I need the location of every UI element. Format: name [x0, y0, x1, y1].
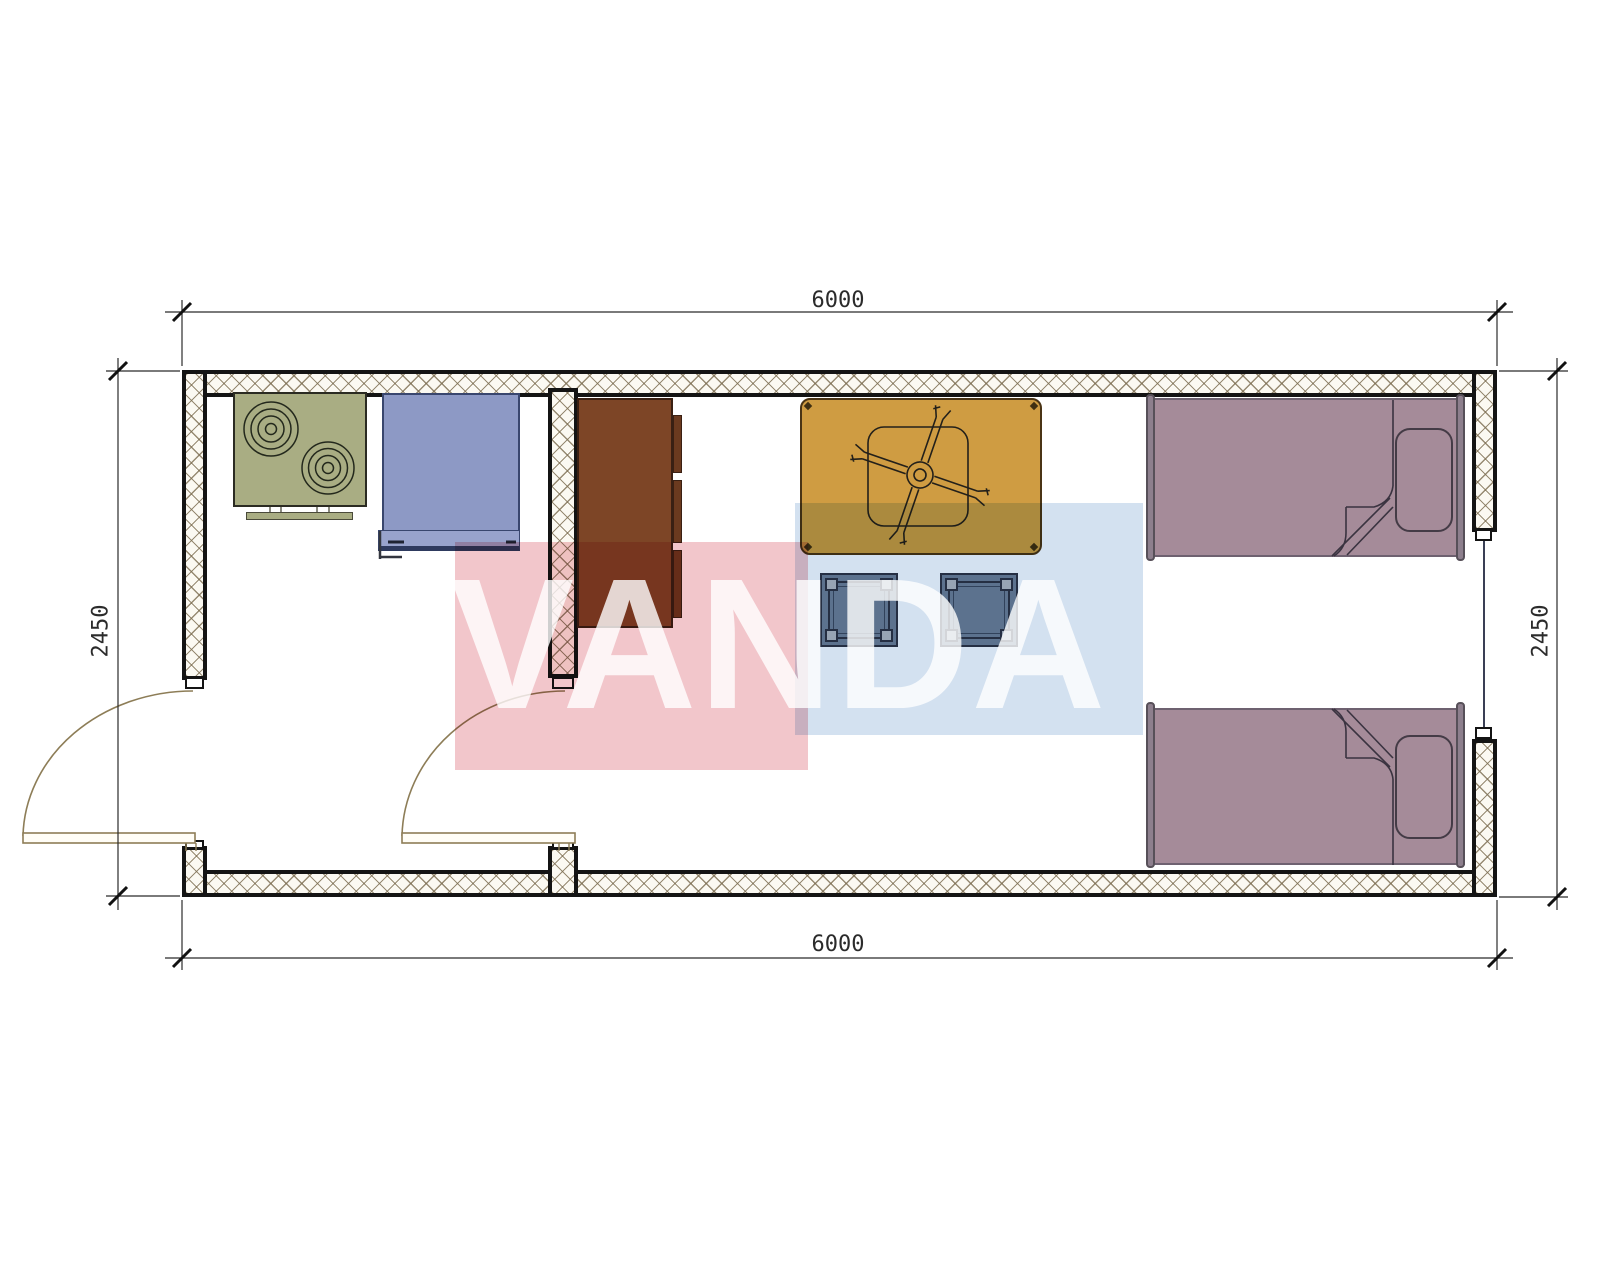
floor-plan-canvas: 6000 6000 2450 2450 VANDA [0, 0, 1600, 1280]
bed-blanket-fold-bottom [1332, 709, 1393, 865]
stove-burners [244, 402, 354, 513]
bed-blanket-fold-top [1332, 400, 1393, 556]
entrance-door [23, 691, 196, 851]
watermark-text: VANDA [450, 552, 1090, 738]
